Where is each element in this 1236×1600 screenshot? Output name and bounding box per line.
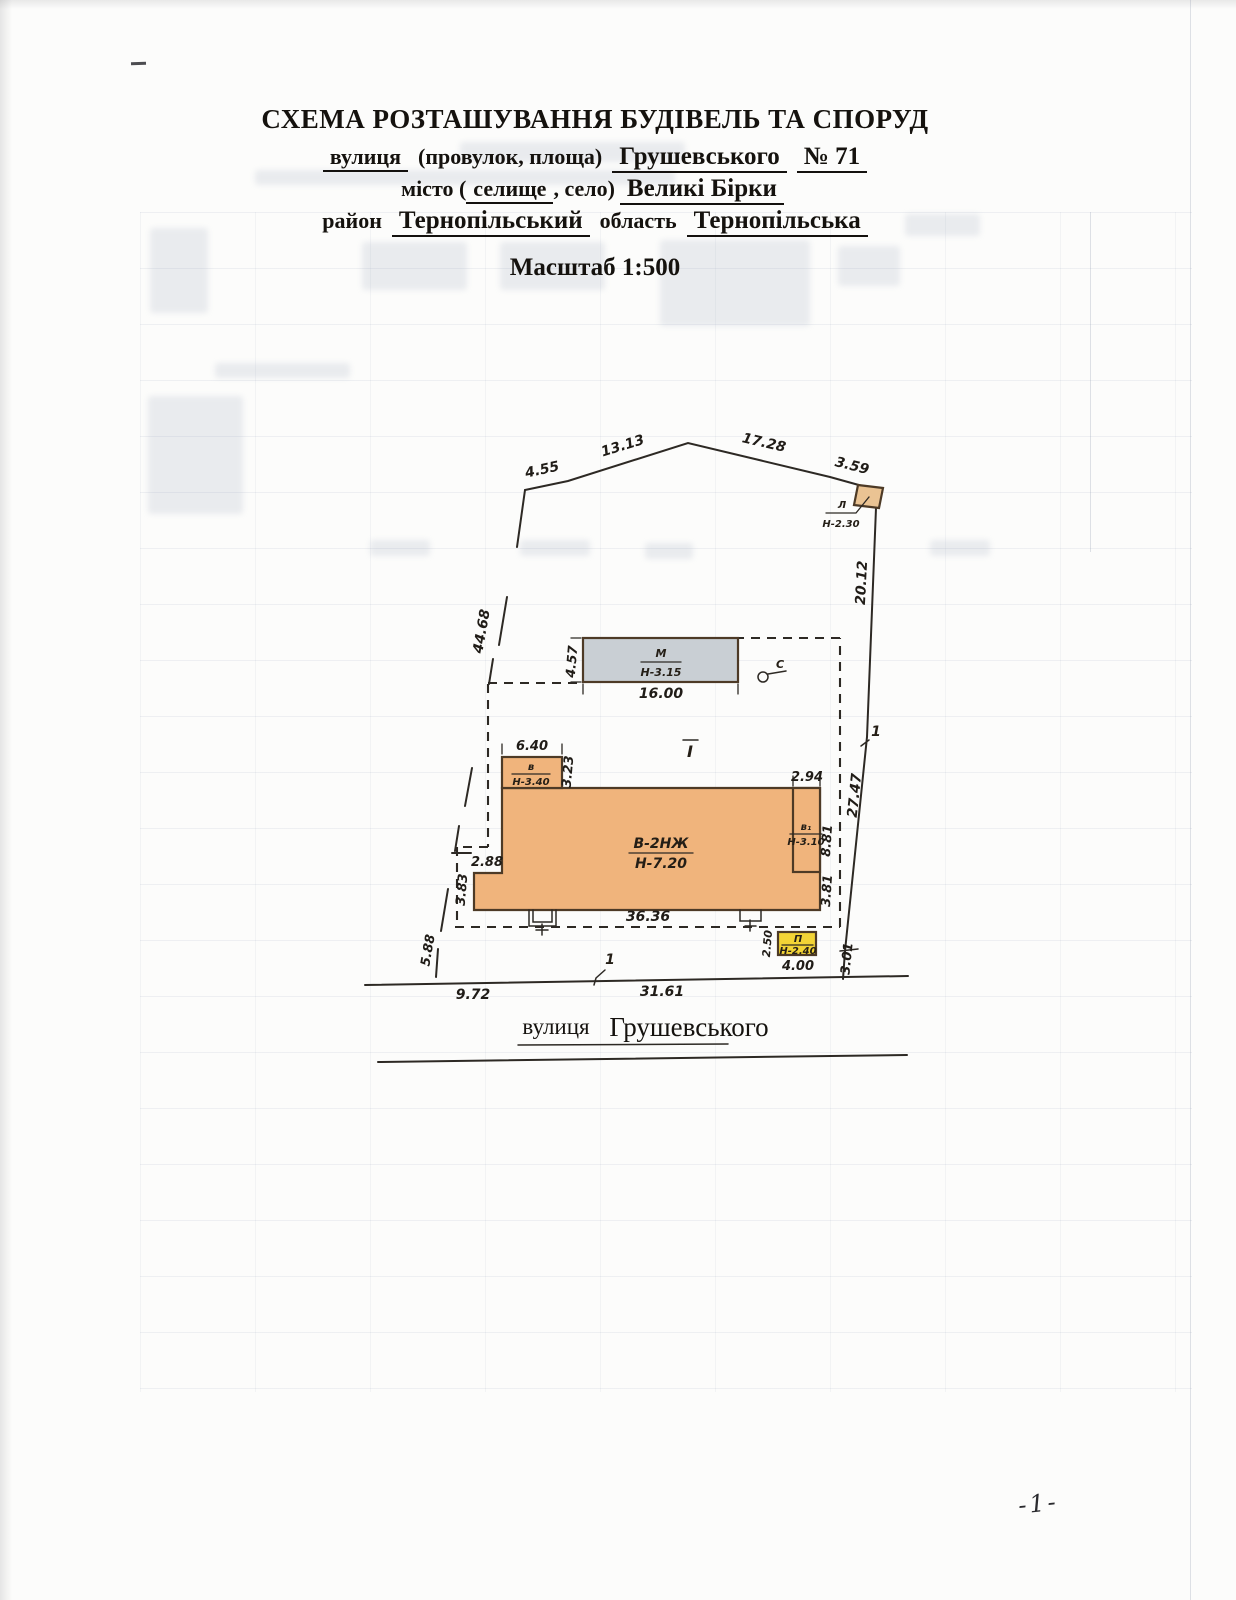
dim-annex-v-width: 6.40 — [516, 739, 548, 754]
dim-top-4: 3.59 — [833, 454, 871, 478]
dim-street-1: 9.72 — [456, 987, 491, 1003]
dim-annex-v1-width: 2.94 — [791, 770, 823, 785]
boundary-point-top-leader — [861, 740, 869, 746]
building-main-label: В-2НЖ — [633, 836, 689, 852]
well-symbol — [758, 672, 768, 682]
boundary-point-street-leader — [594, 970, 605, 985]
dim-shed-m-depth: 4.57 — [564, 644, 582, 679]
shed-l — [854, 485, 883, 508]
dim-left-bottom: 5.88 — [418, 933, 438, 967]
dim-annex-v-depth: 3.23 — [560, 755, 578, 788]
dim-right-lower: 3.81 — [819, 874, 836, 907]
section-marker: І — [687, 742, 693, 761]
street-line-upper — [365, 976, 908, 985]
scanned-document-page: { "header": { "title": "СХЕМА РОЗТАШУВАН… — [0, 0, 1236, 1600]
boundary-point-top: 1 — [871, 724, 881, 740]
porch-1 — [529, 910, 556, 935]
street-line-lower — [378, 1055, 907, 1062]
dim-right-3: 3.01 — [838, 942, 856, 975]
dim-street-2: 31.61 — [640, 984, 684, 1000]
site-plan: М Н-3.15 4.57 16.00 С Л Н-2.30 В-2НЖ Н-7… — [0, 0, 1236, 1600]
well-tail — [768, 671, 786, 674]
dim-shed-p-width: 4.00 — [781, 959, 814, 974]
parcel-boundary-top — [525, 443, 866, 490]
building-main-height: Н-7.20 — [635, 856, 687, 872]
dim-shed-p-depth: 2.50 — [760, 929, 775, 958]
annex-v-label: в — [528, 762, 534, 773]
dim-right-upper: 8.81 — [819, 824, 836, 857]
dim-main-left: 3.83 — [454, 873, 472, 906]
annex-v-height: Н-3.40 — [512, 777, 549, 788]
annex-v1-label: в₁ — [801, 822, 812, 833]
dim-right-2: 27.47 — [845, 772, 866, 818]
street-name-underline — [518, 1044, 728, 1045]
dim-main-width: 36.36 — [626, 909, 671, 925]
shed-m-height: Н-3.15 — [641, 666, 682, 679]
shed-p-height: Н-2.40 — [779, 946, 816, 957]
dim-left-side: 44.68 — [470, 608, 494, 656]
shed-l-height: Н-2.30 — [822, 519, 859, 530]
boundary-point-street: 1 — [605, 952, 615, 968]
dim-shed-m-width: 16.00 — [639, 686, 684, 702]
dim-top-2: 13.13 — [599, 432, 646, 460]
dim-right-1: 20.12 — [853, 560, 871, 605]
street-name-word: вулиця — [522, 1014, 590, 1039]
shed-p-label: П — [794, 934, 803, 945]
shed-l-label: Л — [837, 500, 847, 511]
dim-main-step: 2.88 — [471, 855, 503, 870]
street-name-text: Грушевського — [609, 1012, 768, 1042]
shed-m-label: М — [656, 647, 667, 660]
dim-top-1: 4.55 — [523, 459, 561, 482]
well-label: С — [776, 658, 784, 671]
dim-top-3: 17.28 — [741, 430, 788, 456]
